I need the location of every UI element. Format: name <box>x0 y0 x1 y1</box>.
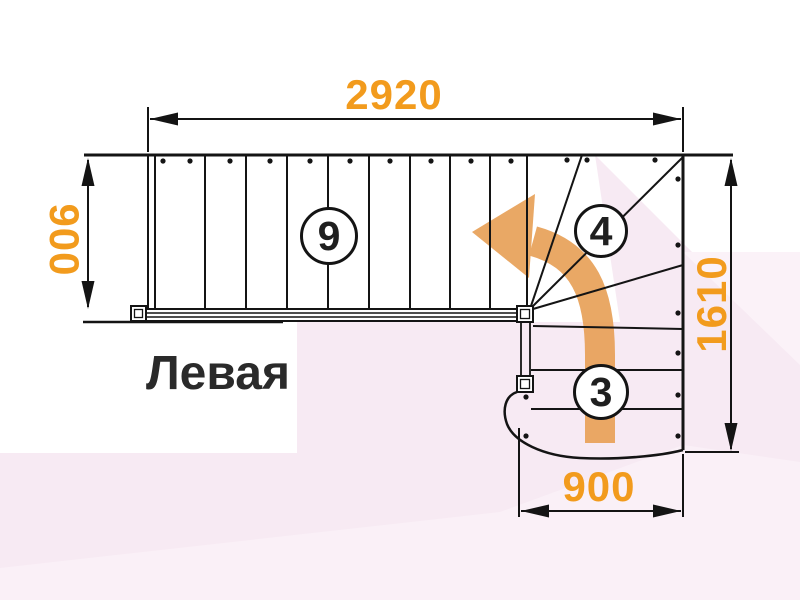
dimension-label-right-total: 1610 <box>691 224 733 384</box>
step-count-badge-winder: 4 <box>574 204 628 258</box>
background-shapes <box>0 155 800 600</box>
dimension-label-left-depth: 900 <box>43 160 85 320</box>
dimension-left-depth <box>82 158 284 322</box>
step-count-badge-lower: 3 <box>573 364 629 420</box>
dimension-label-top-width: 2920 <box>314 74 474 116</box>
page-title: Левая <box>146 350 290 398</box>
handrail-upper <box>146 309 518 321</box>
stair-plan-diagram: 9 4 3 2920 900 1610 900 Левая <box>0 0 800 600</box>
dimension-label-bottom-width: 900 <box>519 466 679 508</box>
step-count-badge-upper: 9 <box>300 207 358 265</box>
